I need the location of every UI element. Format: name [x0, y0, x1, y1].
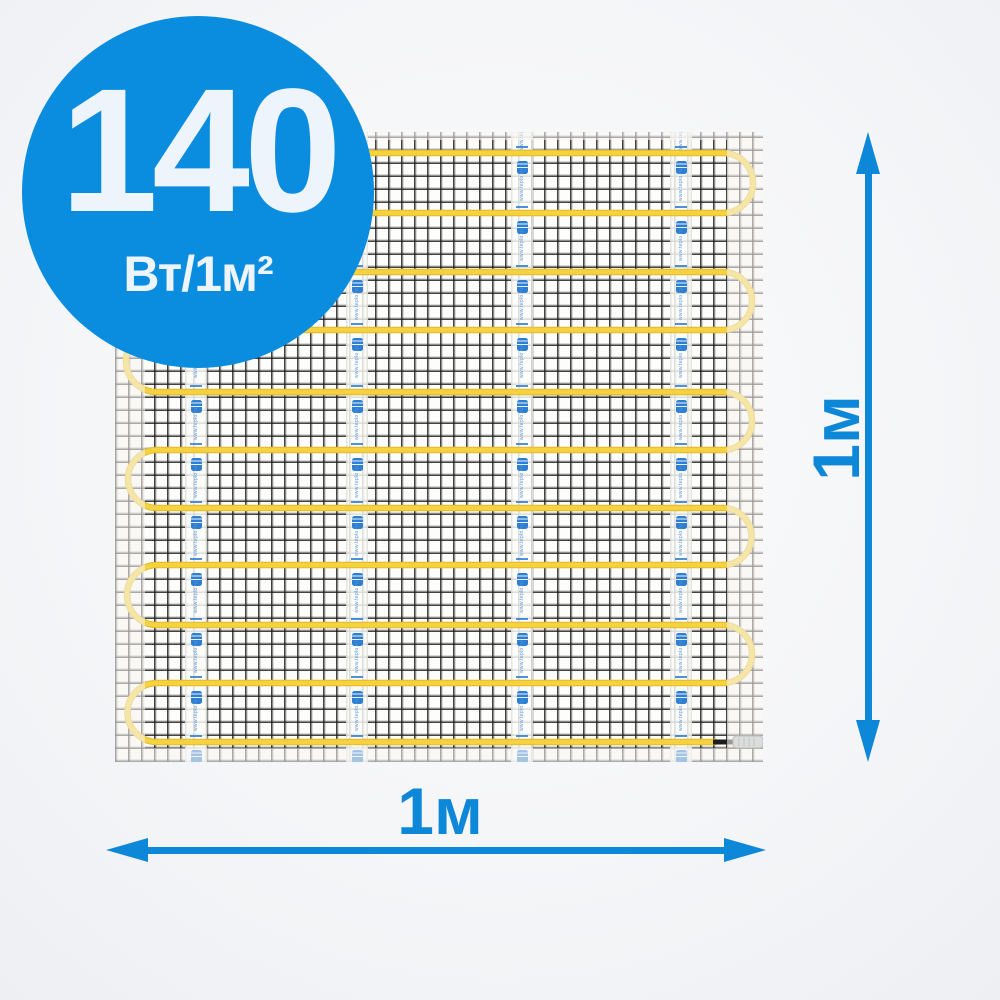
end-sleeve-body: [733, 736, 763, 748]
arrow-right-icon: [724, 838, 766, 862]
arrow-down-icon: [856, 720, 880, 762]
product-image-canvas: www.teplo.ruwww.teplo.ruwww.teplo.ruwww.…: [0, 0, 1000, 1000]
end-sleeve-connector: [733, 736, 763, 748]
arrow-shaft: [142, 847, 730, 854]
width-dimension-label: 1м: [340, 778, 540, 844]
power-value: 140: [60, 63, 336, 239]
power-badge: 140 Вт/1м²: [22, 16, 374, 368]
height-dimension-label: 1м: [801, 378, 871, 498]
power-unit: Вт/1м²: [123, 245, 272, 303]
